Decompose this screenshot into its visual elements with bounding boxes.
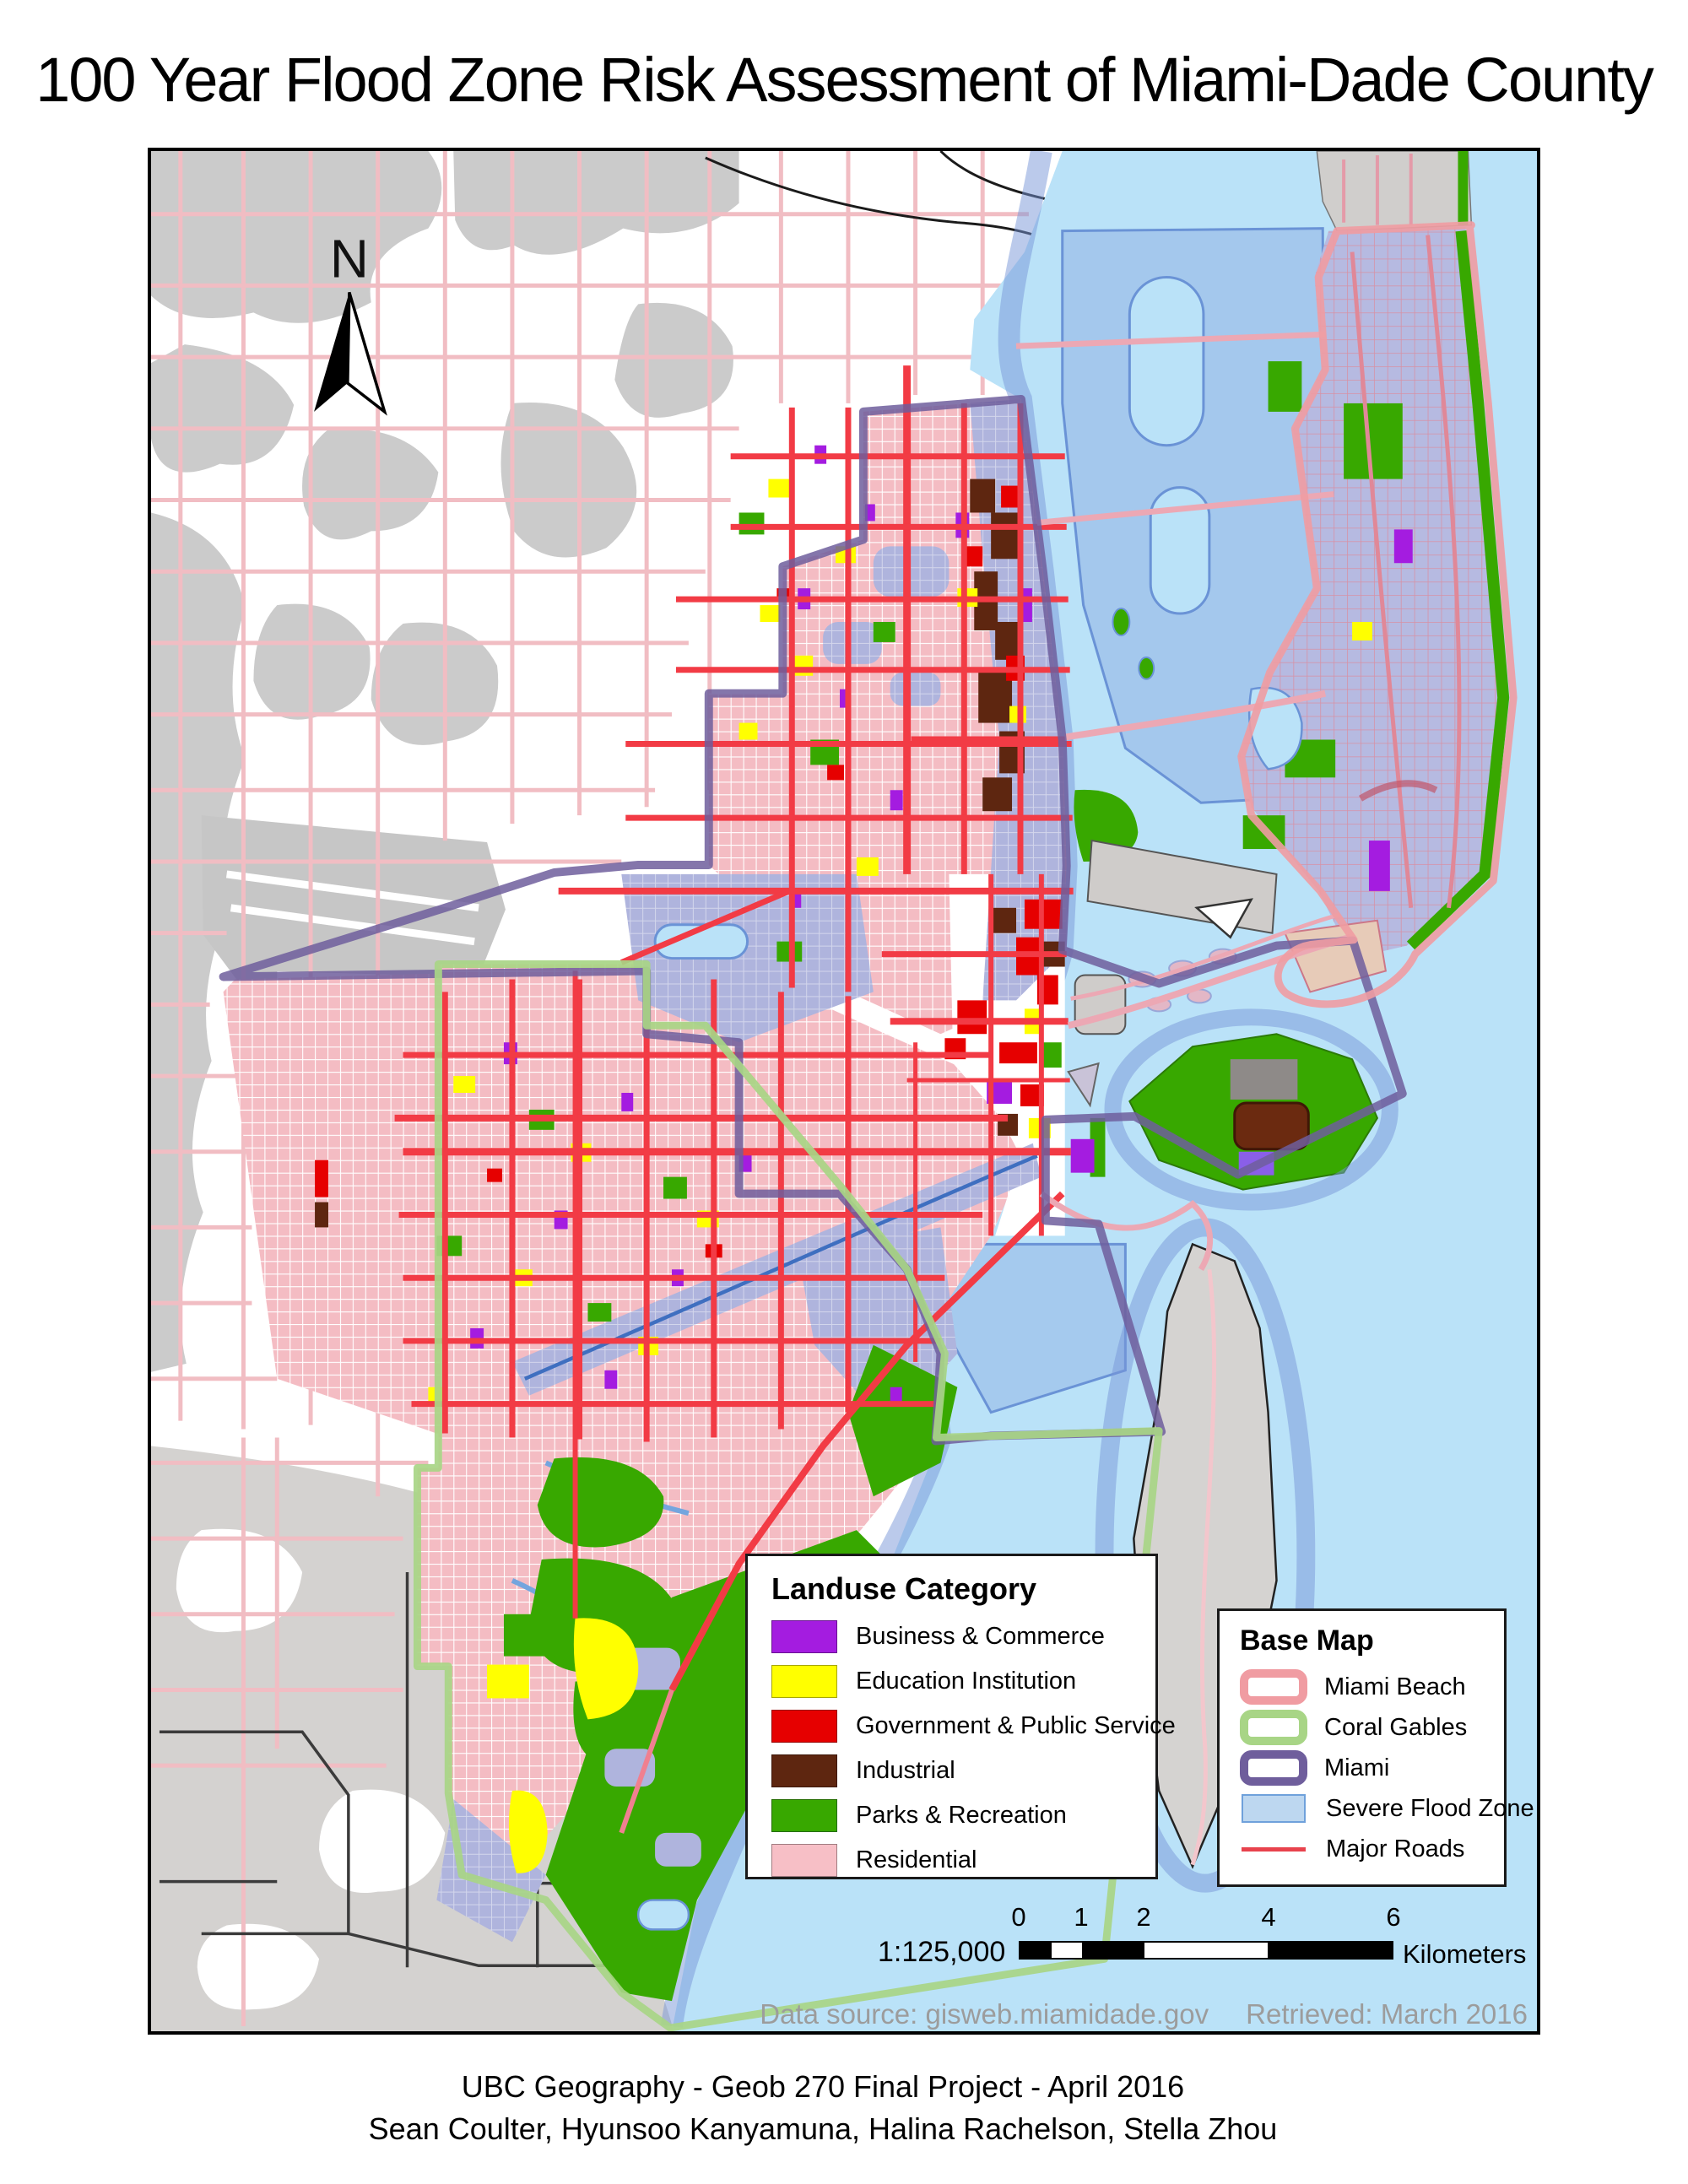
- footer-project: UBC Geography - Geob 270 Final Project -…: [0, 2069, 1646, 2105]
- swatch-business: [771, 1620, 837, 1653]
- data-retrieved: Retrieved: March 2016: [1246, 1998, 1528, 2030]
- page-title: 100 Year Flood Zone Risk Assessment of M…: [0, 44, 1688, 116]
- legend-item-miami-beach: Miami Beach: [1240, 1669, 1504, 1705]
- legend-item-coral-gables: Coral Gables: [1240, 1710, 1504, 1745]
- swatch-flood-zone: [1242, 1794, 1306, 1823]
- legend-basemap: Base Map Miami Beach Coral Gables Miami …: [1217, 1608, 1507, 1887]
- swatch-coral-gables: [1240, 1710, 1307, 1745]
- legend-item-residential: Residential: [771, 1844, 1155, 1877]
- swatch-government: [771, 1710, 837, 1743]
- legend-item-education: Education Institution: [771, 1665, 1155, 1698]
- data-source: Data source: gisweb.miamidade.gov: [760, 1998, 1209, 2030]
- data-attribution: Data source: gisweb.miamidade.govRetriev…: [591, 1998, 1528, 2030]
- swatch-education: [771, 1665, 837, 1698]
- swatch-miami: [1240, 1750, 1307, 1786]
- legend-item-flood-zone: Severe Flood Zone: [1240, 1791, 1504, 1826]
- scale-bar-graphic: [1019, 1941, 1393, 1960]
- scale-unit: Kilometers: [1403, 1939, 1526, 1970]
- legend-item-industrial: Industrial: [771, 1754, 1155, 1787]
- swatch-industrial: [771, 1754, 837, 1787]
- scale-bar: 1:125,000 0 1 2 4 6 Kilometers: [878, 1897, 1545, 1973]
- footer-authors: Sean Coulter, Hyunsoo Kanyamuna, Halina …: [0, 2111, 1646, 2147]
- legend-item-major-roads: Major Roads: [1240, 1831, 1504, 1867]
- swatch-parks: [771, 1799, 837, 1832]
- swatch-residential: [771, 1844, 837, 1877]
- footer: UBC Geography - Geob 270 Final Project -…: [0, 2069, 1646, 2147]
- scale-tick-4: 4: [1243, 1902, 1294, 1933]
- legend-landuse: Landuse Category Business & Commerce Edu…: [745, 1554, 1158, 1879]
- page: 100 Year Flood Zone Risk Assessment of M…: [0, 0, 1688, 2184]
- legend-item-miami: Miami: [1240, 1750, 1504, 1786]
- swatch-major-roads: [1242, 1847, 1306, 1852]
- legend-landuse-title: Landuse Category: [771, 1571, 1155, 1607]
- legend-basemap-title: Base Map: [1240, 1624, 1504, 1657]
- scale-tick-0: 0: [993, 1902, 1044, 1933]
- scale-tick-6: 6: [1368, 1902, 1419, 1933]
- scale-ratio: 1:125,000: [878, 1936, 1005, 1969]
- scale-tick-2: 2: [1118, 1902, 1169, 1933]
- scale-tick-1: 1: [1056, 1902, 1106, 1933]
- legend-item-business: Business & Commerce: [771, 1620, 1155, 1653]
- legend-item-government: Government & Public Service: [771, 1710, 1155, 1743]
- legend-item-parks: Parks & Recreation: [771, 1799, 1155, 1832]
- north-arrow-label: N: [330, 228, 369, 289]
- swatch-miami-beach: [1240, 1669, 1307, 1705]
